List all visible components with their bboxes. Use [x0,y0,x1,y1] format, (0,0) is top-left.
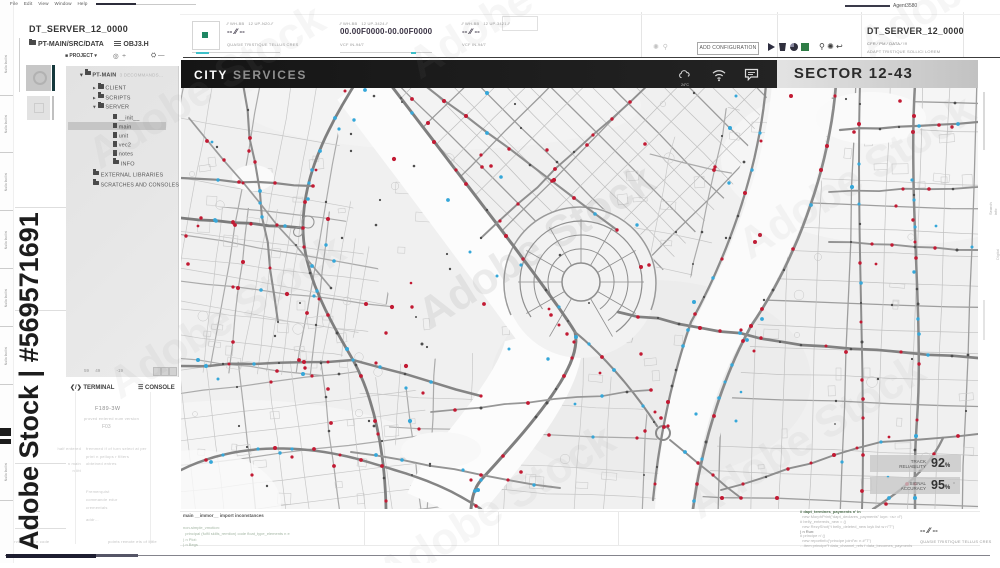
svg-text:Adobe Stock | #569571691: Adobe Stock | #569571691 [14,212,44,550]
